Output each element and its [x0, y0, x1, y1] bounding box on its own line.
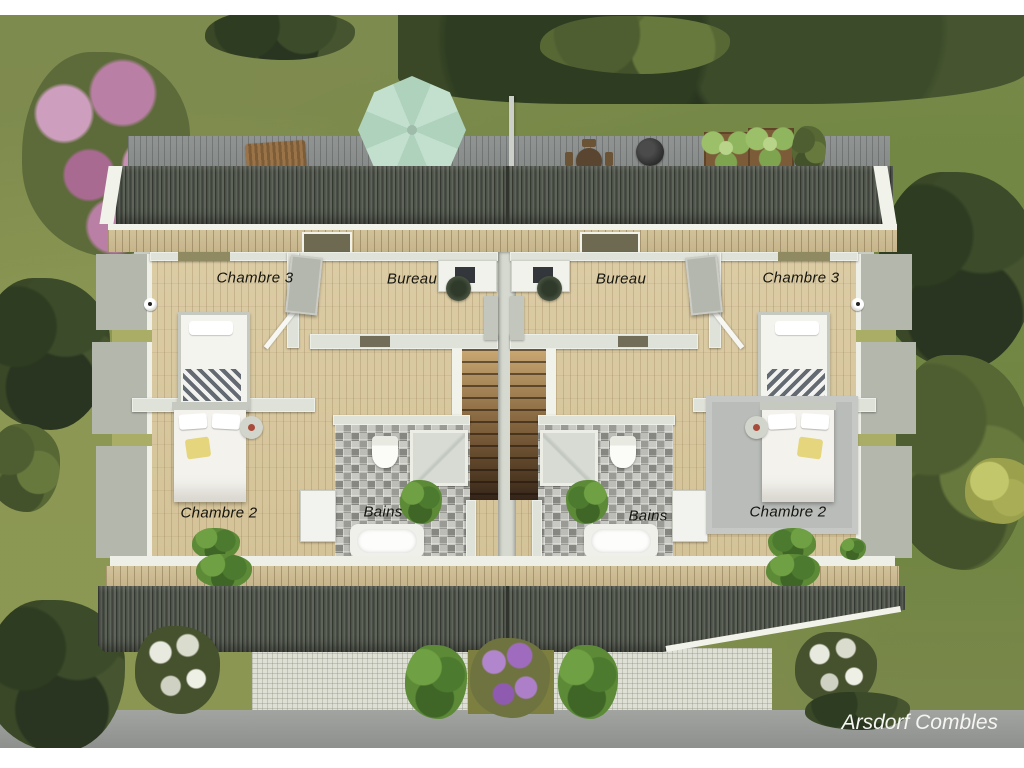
wall-bath-top [333, 415, 470, 425]
window-opening [178, 252, 230, 261]
pillow [179, 413, 208, 430]
door-opening [618, 336, 648, 347]
wall-block [856, 254, 912, 330]
bathtub [350, 524, 424, 558]
wall-planter [766, 554, 820, 588]
patio-chair [582, 139, 596, 147]
bathroom-vanity [672, 490, 708, 542]
wall-block [96, 254, 152, 330]
knee-window [856, 434, 896, 446]
room-label-chambre2-left: Chambre 2 [181, 506, 258, 521]
purple-flower-bush [470, 638, 550, 718]
soccer-ball [144, 298, 157, 311]
roof-party-line [506, 166, 509, 224]
chevron-blanket [183, 369, 241, 401]
toilet [372, 436, 398, 468]
bathroom-plant [566, 480, 608, 524]
wall-bath-top [538, 415, 675, 425]
knee-window [856, 330, 896, 342]
shower [410, 430, 468, 486]
knee-window [112, 330, 152, 342]
pillow [775, 321, 819, 335]
roof-top [116, 166, 893, 224]
desk-chair [537, 276, 562, 301]
wall-hallway [510, 334, 698, 349]
bedside-table [240, 416, 263, 439]
toilet [610, 436, 636, 468]
bathroom-vanity [300, 490, 336, 542]
pillow [801, 413, 830, 430]
pillow [212, 413, 241, 429]
wall-bath-side [532, 500, 542, 560]
soccer-ball [851, 298, 864, 311]
wall-hallway [310, 334, 498, 349]
door-opening [360, 336, 390, 347]
bathtub [584, 524, 658, 558]
wall-planter [196, 554, 252, 588]
green-bush-bottom [558, 645, 618, 719]
wall-planter-small [840, 538, 866, 560]
room-label-bureau-left: Bureau [387, 272, 437, 287]
wall-block [856, 446, 912, 558]
decor-item [753, 424, 760, 431]
bathroom-plant [400, 480, 442, 524]
watermark-title: Arsdorf Combles [842, 711, 998, 735]
shelf-unit [484, 296, 498, 340]
headboard [172, 402, 248, 410]
frame-top [0, 0, 1024, 15]
pillow [189, 321, 233, 335]
bathtub-basin [591, 529, 651, 553]
wall-block [96, 446, 152, 558]
throw-blanket [797, 436, 824, 459]
desk-chair [446, 276, 471, 301]
upper-wall-band [108, 230, 897, 252]
room-label-bains-right: Bains [628, 509, 667, 524]
frame-bottom [0, 748, 1024, 768]
pillow [768, 413, 797, 429]
ball-patch [856, 302, 860, 306]
wardrobe [685, 254, 723, 315]
room-label-chambre3-right: Chambre 3 [763, 271, 840, 286]
potted-palm [744, 118, 796, 170]
room-label-chambre2-right: Chambre 2 [750, 505, 827, 520]
bedside-table [745, 416, 768, 439]
white-flower-bush [135, 626, 220, 714]
room-label-chambre3-left: Chambre 3 [217, 271, 294, 286]
yellow-bush-right [965, 458, 1024, 524]
room-label-bureau-right: Bureau [596, 272, 646, 287]
umbrella-center [407, 125, 417, 135]
shower [540, 430, 598, 486]
double-bed [762, 406, 834, 502]
floorplan-render: Chambre 3 Bureau Bureau Chambre 3 Chambr… [0, 0, 1024, 768]
patio-chair [565, 152, 573, 166]
green-bush-bottom [405, 645, 467, 719]
barbecue-grill [636, 138, 664, 166]
throw-blanket [185, 436, 212, 459]
patio-chair [605, 152, 613, 166]
wall-bath-side [466, 500, 476, 560]
property-divider-fence [509, 96, 514, 174]
wall-block [92, 342, 152, 434]
headboard [760, 402, 836, 410]
tree-cluster-top-left [205, 10, 355, 60]
room-label-bains-left: Bains [363, 505, 402, 520]
double-bed [174, 406, 246, 502]
wall-block [856, 342, 916, 434]
ball-patch [148, 302, 152, 306]
knee-window [112, 434, 152, 446]
tree-cluster-top [540, 16, 730, 74]
bathtub-basin [357, 529, 417, 553]
window-opening [778, 252, 830, 261]
shelf-unit [510, 296, 524, 340]
single-bed [178, 312, 250, 412]
decor-item [248, 424, 255, 431]
